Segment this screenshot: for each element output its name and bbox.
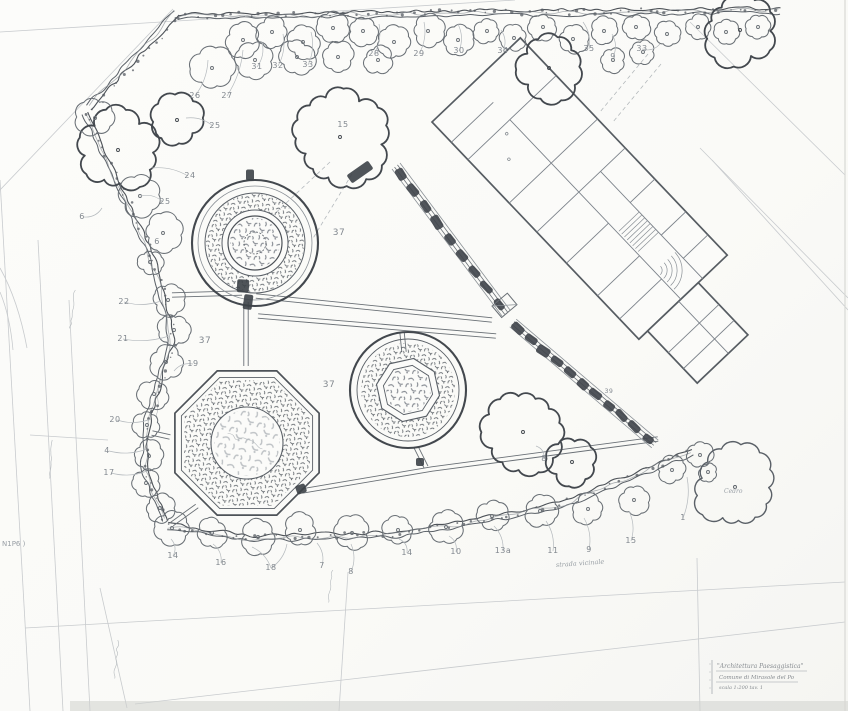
hedge-dot	[301, 536, 303, 538]
tree-trunk-dot	[162, 232, 165, 235]
hedge-dot	[276, 12, 279, 15]
round-bed-north	[192, 180, 318, 306]
tree-trunk-dot	[699, 454, 702, 457]
hedge-dot	[251, 15, 253, 17]
tree	[658, 455, 686, 483]
tree-canopy	[316, 11, 349, 43]
hedge-dot	[650, 9, 653, 12]
hedge-dot	[436, 524, 438, 526]
hedge-dot	[765, 10, 767, 12]
plant-number-label: 28	[368, 49, 379, 58]
hedge-dot	[235, 535, 237, 537]
tree	[316, 11, 349, 43]
hedge-dot	[206, 17, 208, 19]
tree-trunk-dot	[146, 424, 149, 427]
hedge-dot	[161, 508, 164, 511]
hedge-dot	[178, 528, 181, 531]
tree-trunk-dot	[271, 31, 274, 34]
hedge-dot	[692, 12, 694, 14]
plant-number-label: 14	[167, 551, 178, 560]
hedge-dot	[132, 69, 134, 71]
title-block-line: Comune di Mirasole del Po	[719, 675, 795, 681]
hedge-dot	[156, 404, 159, 407]
tree-canopy	[377, 25, 410, 58]
tree-canopy	[695, 442, 774, 524]
plant-number-label: 26	[189, 91, 200, 100]
hedge-dot	[317, 536, 319, 538]
hedge-dot	[148, 254, 151, 257]
tree-trunk-dot	[332, 27, 335, 30]
hedge-dot	[170, 357, 171, 358]
garden-walk	[152, 431, 171, 439]
tree-trunk-dot	[513, 37, 516, 40]
hedge-dot	[610, 13, 612, 15]
plant-number-label: 1	[680, 513, 686, 522]
tree	[525, 495, 559, 528]
plant-number-label: 21	[117, 334, 128, 343]
tree-trunk-dot	[603, 30, 606, 33]
hedge-dot	[165, 304, 167, 306]
hedge-dot	[161, 38, 163, 40]
hedge-dot	[392, 536, 394, 538]
plant-number-label: 8	[541, 454, 547, 463]
tree-canopy	[382, 516, 413, 544]
plant-number-label: 25	[159, 197, 170, 206]
hedge-dot	[517, 514, 519, 516]
tree-canopy	[323, 41, 354, 72]
tree	[414, 13, 445, 47]
tree-canopy	[658, 455, 686, 483]
hedge-dot	[628, 11, 630, 13]
hedge-dot	[635, 474, 638, 477]
hedge-dot	[164, 294, 166, 296]
tree-trunk-dot	[176, 119, 179, 122]
tree	[686, 14, 711, 40]
hedge-dot	[398, 533, 401, 536]
tree-trunk-dot	[757, 26, 760, 29]
tree-trunk-dot	[299, 529, 302, 532]
survey-line	[30, 435, 108, 440]
hedge-dot	[510, 10, 513, 13]
hedge-dot	[237, 11, 240, 14]
tree	[153, 284, 185, 317]
tree	[137, 380, 169, 409]
tree	[256, 16, 287, 49]
plant-number-label: 14	[401, 548, 412, 557]
hedge-dot	[473, 10, 475, 12]
tree-canopy	[287, 25, 320, 60]
tree-trunk-dot	[242, 39, 245, 42]
hedge-dot	[740, 9, 742, 11]
tree-trunk-dot	[173, 329, 176, 332]
hedge-dot	[568, 13, 571, 16]
plant-number-label: 9	[610, 52, 616, 61]
tree	[235, 42, 273, 80]
tree-canopy	[151, 93, 204, 146]
hedge-dot	[314, 12, 316, 14]
tree-trunk-dot	[539, 510, 542, 513]
plant-number-label: 27	[221, 91, 232, 100]
tree-trunk-dot	[427, 30, 430, 33]
plant-number-label: 4	[104, 446, 110, 455]
hedge-dot	[593, 12, 596, 15]
plant-number-label: 22	[118, 297, 129, 306]
tree-trunk-dot	[145, 482, 148, 485]
hedge-dot	[283, 538, 285, 540]
hedge-dot	[575, 9, 578, 12]
hedge-dot	[505, 516, 508, 519]
hedge-dot	[604, 488, 606, 490]
site-plan-drawing: 2627313233282930343593315252425662221192…	[0, 0, 848, 711]
tree	[287, 25, 320, 60]
hedge-dot	[582, 8, 585, 11]
plant-number-label: 34	[497, 46, 508, 55]
hedge-dot	[329, 15, 331, 17]
scan-bottom-band	[70, 701, 848, 711]
hedge-dot	[229, 13, 232, 16]
survey-line	[700, 148, 848, 298]
hedge-dot	[483, 520, 485, 522]
plant-number-label: 10	[450, 547, 461, 556]
plant-number-label: 24	[184, 171, 195, 180]
plant-number-label: 20	[109, 415, 120, 424]
hedge-dot	[469, 9, 471, 11]
hedge-dot	[558, 10, 559, 11]
label-leader-line	[84, 208, 102, 217]
plant-number-label: 37	[199, 336, 211, 346]
tree-trunk-dot	[571, 461, 574, 464]
hedge-dot	[645, 467, 647, 469]
pergola-post-planting	[419, 199, 432, 214]
tree	[377, 25, 410, 58]
hedge-dot	[285, 15, 287, 17]
tree	[619, 486, 650, 515]
tree-trunk-dot	[542, 26, 545, 29]
pergola-post-planting	[627, 419, 642, 434]
tree-trunk-dot	[635, 26, 638, 29]
hedge-dot	[275, 534, 277, 536]
hedge-dot	[546, 12, 547, 13]
hedge-dot	[175, 17, 177, 19]
hedge-dot	[245, 538, 247, 540]
tree	[323, 41, 354, 72]
hedge-dot	[132, 213, 135, 216]
plant-number-label: 9	[586, 545, 592, 554]
tree-trunk-dot	[697, 26, 700, 29]
hedge-dot	[386, 15, 388, 17]
label-leader-line	[683, 477, 688, 518]
tree-trunk-dot	[339, 136, 342, 139]
garden-walk	[256, 294, 492, 322]
hedge-dot	[197, 16, 199, 18]
hedge-dot	[102, 94, 105, 97]
hedge-dot	[347, 15, 349, 17]
hedge-dot	[626, 475, 628, 477]
hedge-dot	[355, 14, 357, 16]
tree-trunk-dot	[666, 33, 669, 36]
hedge-dot	[677, 10, 679, 12]
hedge-dot	[85, 113, 88, 116]
plant-number-label: 37	[323, 380, 335, 390]
tree	[527, 14, 556, 41]
hedge-dot	[123, 73, 126, 76]
hedge-dot	[456, 522, 458, 524]
hedge-dot	[148, 47, 150, 49]
survey-line	[38, 240, 63, 711]
plant-number-label: 13a	[495, 546, 512, 555]
title-block-line: "Architettura Paesaggistica"	[717, 663, 804, 670]
tree-trunk-dot	[486, 30, 489, 33]
label-leader-line	[109, 449, 147, 453]
tree-trunk-dot	[587, 508, 590, 511]
hedge-dot	[651, 467, 654, 470]
dark-junction-blob	[295, 483, 307, 495]
title-block: "Architettura Paesaggistica"Comune di Mi…	[709, 660, 807, 694]
handwritten-annotation: N1P6 )	[2, 540, 26, 548]
tree-trunk-dot	[393, 41, 396, 44]
plant-number-label: 18	[265, 563, 276, 572]
survey-line	[697, 558, 700, 711]
hedge-dot	[135, 222, 137, 224]
plant-number-label: 6	[154, 237, 160, 246]
hedge-dot	[485, 12, 487, 14]
hedge-dot	[101, 146, 103, 148]
tree	[573, 493, 603, 525]
hedge-dot	[307, 536, 310, 539]
tree	[654, 21, 681, 46]
tree-canopy	[480, 393, 565, 476]
hedge-dot	[142, 55, 144, 57]
hedge-dot	[684, 11, 686, 13]
plant-number-label: 7	[319, 561, 325, 570]
hedge-dot	[91, 109, 93, 111]
dark-junction-blob	[243, 294, 254, 310]
hedge-dot	[116, 172, 118, 174]
tree	[591, 16, 617, 45]
tree-trunk-dot	[707, 471, 710, 474]
tree	[382, 516, 413, 544]
hedge-dot	[448, 527, 450, 529]
hedge-dot	[191, 529, 194, 532]
tree	[154, 511, 189, 547]
hedge-dot	[131, 201, 134, 204]
tree-canopy	[292, 87, 389, 188]
hedge-dot	[168, 523, 170, 525]
hedge-dot	[438, 8, 441, 11]
plant-number-label: 37	[333, 228, 345, 238]
tree	[476, 500, 509, 530]
survey-line	[69, 300, 90, 711]
tree-trunk-dot	[337, 56, 340, 59]
tree	[349, 17, 378, 46]
hedge-dot	[343, 531, 346, 534]
hedge-dot	[146, 476, 147, 477]
plant-number-label: 33	[302, 60, 313, 69]
dark-junction-blob	[416, 458, 424, 466]
hedge-dot	[367, 13, 370, 16]
hedge-dot	[150, 488, 153, 491]
hedge-dot	[184, 13, 187, 16]
hedge-dot	[640, 7, 642, 9]
site-plan-sheet: 2627313233282930343593315252425662221192…	[0, 0, 848, 711]
pergola-post-planting	[602, 399, 616, 412]
tree-trunk-dot	[117, 149, 120, 152]
pergola-post-planting	[588, 387, 603, 401]
hedge-dot	[122, 194, 124, 196]
tree-canopy	[132, 469, 160, 497]
hedge-dot	[166, 28, 168, 30]
hedge-dot	[103, 155, 106, 158]
tree-trunk-dot	[671, 469, 674, 472]
plant-number-label: 16	[215, 558, 226, 567]
hedge-dot	[730, 9, 731, 10]
building-outer-wall	[432, 38, 727, 339]
hedge-dot	[205, 533, 207, 535]
tree	[695, 442, 774, 524]
hedge-dot	[493, 10, 496, 13]
dark-junction-blob	[246, 170, 254, 181]
plant-number-label: 11	[547, 546, 558, 555]
hedge-dot	[232, 537, 234, 539]
hedge-dot	[362, 531, 365, 534]
hedge-dot	[523, 510, 525, 512]
tree-canopy	[745, 15, 770, 39]
plant-number-label: 8	[348, 567, 354, 576]
tree-canopy	[654, 21, 681, 46]
hedge-dot	[183, 530, 186, 533]
hedge-dot	[221, 14, 224, 17]
hedge-dot	[264, 533, 267, 536]
tree	[473, 19, 499, 44]
plant-number-label: 19	[187, 359, 198, 368]
annotation-squiggle	[328, 570, 333, 602]
tree-trunk-dot	[572, 38, 575, 41]
tree-canopy	[591, 16, 617, 45]
hedge-dot	[541, 9, 544, 12]
hedge-dot	[558, 504, 560, 506]
survey-line	[0, 180, 30, 711]
hedge-dot	[301, 13, 303, 15]
hedge-dot	[136, 60, 139, 63]
hedge-dot	[173, 324, 175, 326]
hedge-dot	[617, 480, 620, 483]
hedge-dot	[171, 352, 173, 354]
hedge-dot	[170, 333, 172, 335]
tree-trunk-dot	[633, 499, 636, 502]
hedge-dot	[147, 428, 149, 430]
hedge-dot	[418, 529, 420, 531]
hedge-dot	[164, 377, 165, 378]
hedge-dot	[505, 9, 507, 11]
hedge-dot	[662, 11, 665, 14]
hedge-dot	[155, 41, 158, 44]
tree	[137, 251, 164, 274]
label-leader-line	[123, 336, 169, 341]
survey-line	[690, 22, 845, 175]
hedge-dot	[717, 11, 720, 14]
hedge-dot	[376, 535, 378, 537]
hedge-dot	[451, 9, 453, 11]
garden-walk	[172, 291, 242, 297]
plant-number-label: 15	[337, 120, 348, 129]
tree	[292, 87, 389, 188]
tree	[714, 19, 740, 44]
survey-line	[339, 572, 348, 711]
plant-number-label: 32	[272, 61, 283, 70]
hedge-dot	[620, 9, 622, 11]
tree-trunk-dot	[397, 529, 400, 532]
tree-canopy	[154, 511, 189, 547]
survey-line	[100, 588, 127, 708]
hedge-dot	[408, 531, 410, 533]
tree-canopy	[473, 19, 499, 44]
boundary-hedge	[82, 112, 177, 521]
tree-canopy	[619, 486, 650, 515]
hedge-dot	[554, 507, 556, 509]
tree-trunk-dot	[522, 431, 525, 434]
dark-junction-blob	[237, 279, 250, 293]
tree-canopy	[256, 16, 287, 49]
plant-number-label: 33	[636, 44, 647, 53]
tree-trunk-dot	[153, 393, 156, 396]
pergola-post-planting	[614, 408, 628, 423]
hedge-dot	[114, 85, 115, 86]
hedge-dot	[158, 391, 160, 393]
hedge-dot	[656, 10, 659, 13]
label-leader-line	[152, 168, 188, 176]
hedge-dot	[164, 369, 167, 372]
hedge-dot	[330, 534, 332, 536]
hedge-dot	[98, 140, 100, 142]
hedge-dot	[457, 11, 460, 14]
tree	[480, 393, 565, 476]
hedge-dot	[173, 19, 176, 22]
garden-walk	[244, 302, 248, 366]
plant-number-label: 15	[625, 536, 636, 545]
hedge-dot	[529, 10, 532, 13]
hedge-dot	[609, 483, 611, 485]
hedge-dot	[253, 534, 256, 537]
hedge-dot	[110, 162, 113, 165]
hedge-dot	[584, 494, 585, 495]
hedge-dot	[256, 12, 259, 15]
hedge-dot	[667, 458, 670, 461]
tree-trunk-dot	[377, 59, 380, 62]
round-bed-center	[350, 332, 466, 448]
tree	[745, 15, 770, 39]
tree-canopy	[476, 500, 509, 530]
tree-canopy	[573, 493, 603, 525]
hedge-dot	[603, 12, 605, 14]
hedge-dot	[375, 12, 378, 15]
pergola-post-planting	[550, 355, 565, 369]
tree-canopy	[686, 14, 711, 40]
tree	[132, 412, 160, 438]
hedge-dot	[536, 506, 538, 508]
hedge-dot	[661, 465, 664, 468]
survey-line	[712, 160, 848, 310]
tree	[146, 212, 183, 254]
handwritten-annotation: strada vicinale	[556, 558, 605, 569]
pergola-walk	[510, 319, 658, 448]
tree-trunk-dot	[457, 39, 460, 42]
road-curve	[0, 268, 27, 348]
pergola-post-planting	[479, 280, 494, 295]
hedge-dot	[214, 14, 217, 17]
tree	[622, 15, 650, 40]
tree-canopy	[622, 15, 650, 40]
hedge-dot	[292, 11, 295, 14]
